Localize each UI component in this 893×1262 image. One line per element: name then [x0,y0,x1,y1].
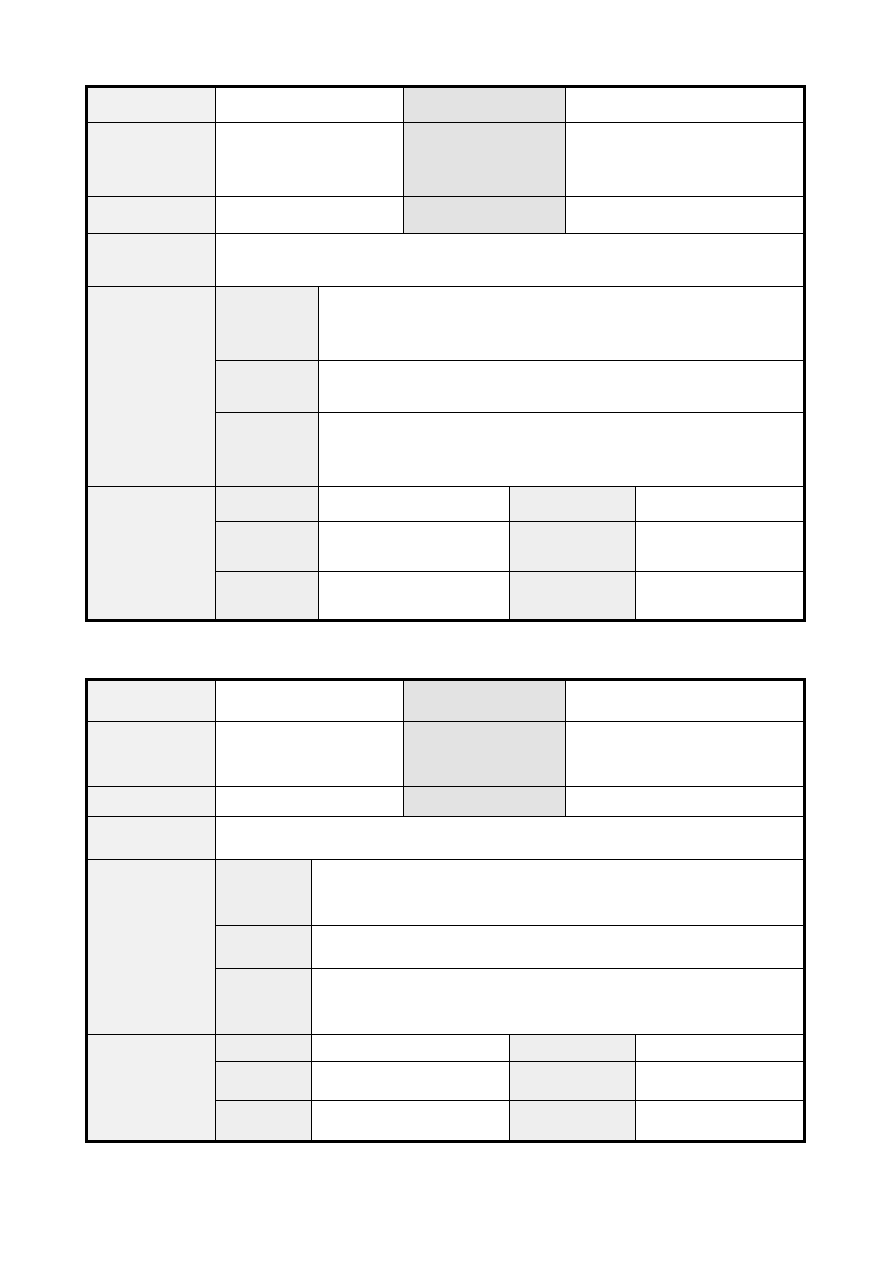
form-table-1-section1-row3-value [319,413,803,487]
form-table-1-row3-value2 [566,197,803,234]
form-table-1-row3-value [216,197,404,234]
form-table-2-section2-row1-value2 [636,1035,803,1062]
form-table-1-row4-label [88,234,216,287]
form-table-1-section2-row3-sublabel [216,572,319,619]
form-table-1-row1-label2 [404,88,566,123]
form-table-1-section2-row1-sublabel [216,487,319,522]
form-table-1-row1-label [88,88,216,123]
form-table-2-section2-row1-sublabel [216,1035,312,1062]
form-table-2 [85,678,806,1143]
form-table-2-section2-row1-sublabel2 [510,1035,636,1062]
form-table-2-section1-row1-value [312,860,803,926]
form-table-2-row1-label [88,681,216,722]
form-table-2-row3-label2 [404,787,566,817]
document-page [0,0,893,1262]
form-table-2-section2-row2-value [312,1062,510,1101]
form-table-1-section2-row2-sublabel [216,522,319,572]
form-table-2-section2-row2-sublabel [216,1062,312,1101]
form-table-2-row1-label2 [404,681,566,722]
form-table-2-section1-row2-sublabel [216,926,312,969]
form-table-1-row3-label [88,197,216,234]
form-table-2-section2-row3-value [312,1101,510,1140]
form-table-1-row1-value [216,88,404,123]
form-table-2-section1-row3-sublabel [216,969,312,1035]
form-table-2-row3-value2 [566,787,803,817]
form-table-2-section1-row1-sublabel [216,860,312,926]
form-table-1-row3-label2 [404,197,566,234]
form-table-2-row2-label2 [404,722,566,787]
form-table-1-section2-row1-sublabel2 [510,487,636,522]
form-table-1-row2-value [216,123,404,197]
form-table-1-section2-row3-sublabel2 [510,572,636,619]
form-table-1-section2-label [88,487,216,619]
form-table-1-row2-label [88,123,216,197]
form-table-2-section1-label [88,860,216,1035]
form-table-2-row3-label [88,787,216,817]
form-table-1-section1-row1-sublabel [216,287,319,361]
form-table-2-section1-row3-value [312,969,803,1035]
form-table-1-section2-row3-value2 [636,572,803,619]
form-table-2-section2-row2-value2 [636,1062,803,1101]
form-table-2-section1-row2-value [312,926,803,969]
form-table-1-section2-row3-value [319,572,510,619]
form-table-1-section1-row2-value [319,361,803,413]
form-table-1-section2-row1-value2 [636,487,803,522]
form-table-1-row2-label2 [404,123,566,197]
form-table-2-section2-row2-sublabel2 [510,1062,636,1101]
form-table-1-section1-row1-value [319,287,803,361]
form-table-2-section2-row3-value2 [636,1101,803,1140]
form-table-2-section2-label [88,1035,216,1140]
form-table-1-section1-row2-sublabel [216,361,319,413]
form-table-1-section2-row2-sublabel2 [510,522,636,572]
form-table-1-row1-value2 [566,88,803,123]
form-table-1-row4-value [216,234,803,287]
form-table-2-row2-label [88,722,216,787]
form-table-2-section2-row1-value [312,1035,510,1062]
form-table-2-row1-value [216,681,404,722]
form-table-2-row4-label [88,817,216,860]
form-table-1 [85,85,806,622]
form-table-2-row2-value2 [566,722,803,787]
form-table-2-row1-value2 [566,681,803,722]
form-table-1-section2-row1-value [319,487,510,522]
form-table-2-row2-value [216,722,404,787]
form-table-2-section2-row3-sublabel [216,1101,312,1140]
form-table-1-row2-value2 [566,123,803,197]
form-table-2-section2-row3-sublabel2 [510,1101,636,1140]
form-table-2-row3-value [216,787,404,817]
form-table-1-section2-row2-value2 [636,522,803,572]
form-table-1-section1-label [88,287,216,487]
form-table-2-row4-value [216,817,803,860]
form-table-1-section2-row2-value [319,522,510,572]
form-table-1-section1-row3-sublabel [216,413,319,487]
